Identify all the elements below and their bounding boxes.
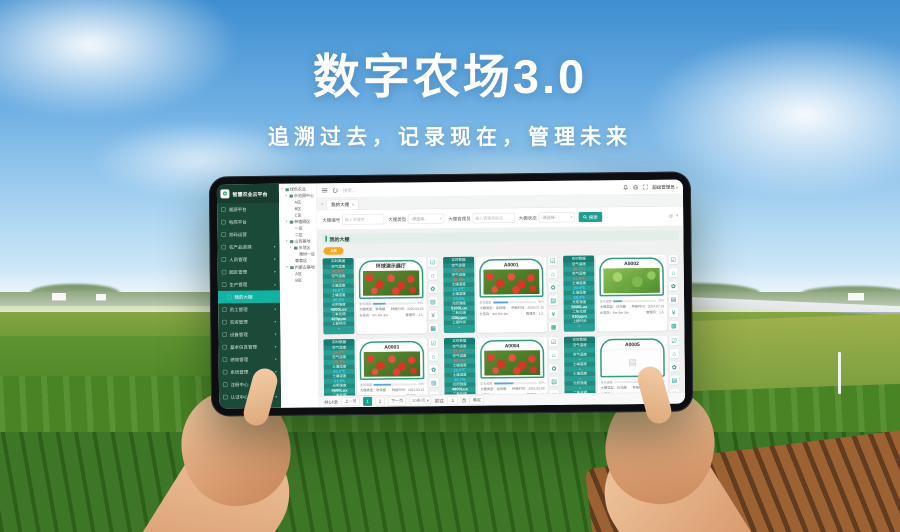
tab-my-greenhouse[interactable]: 我的大棚 ×: [327, 199, 359, 209]
chevron-icon: ▾: [275, 345, 277, 349]
folder-icon: [294, 246, 298, 249]
filter-refresh-icon[interactable]: ⟳: [669, 213, 674, 220]
farm-work-icon[interactable]: ✿: [670, 363, 679, 372]
pagination-total: 共14条: [324, 398, 338, 405]
select-checkbox-icon[interactable]: ☑: [428, 258, 437, 267]
hero-subtitle: 追溯过去，记录现在，管理未来: [0, 121, 900, 151]
greenhouse-card-body: A0001生长进度35%大棚类型：连栋棚种植时间：2020.07.23长宽高：8…: [476, 256, 547, 333]
greenhouse-arch: A0003: [359, 341, 424, 380]
chevron-down-icon: ▾: [440, 217, 442, 221]
info-line: 大棚类型：日光棚种植时间：2024.07.16: [600, 304, 664, 309]
info-pair: 长宽高：6m·4m·3m: [600, 311, 629, 316]
filter-select-3[interactable]: -请选择-▾: [539, 212, 575, 222]
sensor-value: -: [564, 323, 595, 328]
goto-confirm-button[interactable]: 确定: [470, 396, 484, 405]
info-line: 长宽高：8m·6m·3m管理员：1人: [480, 312, 544, 317]
chevron-icon: ▾: [275, 395, 277, 399]
sidebar-item-4[interactable]: 人员管理▾: [218, 253, 280, 266]
progress-label: 生长进度: [360, 382, 372, 387]
growth-progress: 生长进度45%: [480, 381, 544, 386]
info-pair: 种植时间：2021.03.12: [392, 388, 425, 393]
folder-icon: [285, 188, 289, 191]
progress-label: 生长进度: [479, 300, 491, 305]
info-pair: 管理员：1人: [646, 310, 664, 315]
revenue-icon[interactable]: ¥: [549, 309, 558, 318]
sidebar-item-label: 溯源平台: [229, 206, 273, 213]
menu-icon: [223, 382, 228, 387]
greenhouse-monitor-icon[interactable]: ⌂: [549, 351, 558, 360]
farm-work-icon[interactable]: ✿: [669, 282, 678, 291]
folder-icon: [290, 266, 294, 269]
section-accent-bar: [325, 236, 327, 242]
farm-work-icon[interactable]: ✿: [549, 283, 558, 292]
card-actions: ☑⌂✿▤¥▦: [548, 256, 559, 332]
greenhouse-card-1: 实时数据空气温度28.2℃空气湿度56.4%土壤温度21.3℃土壤湿度33.5%…: [443, 256, 559, 333]
greenhouse-monitor-icon[interactable]: ⌂: [548, 270, 557, 279]
growth-progress: 生长进度40%: [360, 382, 424, 387]
chevron-icon: ▾: [274, 257, 276, 261]
per-page-select[interactable]: 10条/页 ▾: [410, 396, 432, 405]
greenhouse-card-0: 实时数据空气温度26.5℃空气湿度63.2%土壤温度18.6℃土壤湿度30.2%…: [323, 257, 439, 334]
info-pair: 大棚类型：连栋棚: [479, 306, 505, 311]
page-button-1[interactable]: 1: [363, 397, 372, 406]
chevron-icon: ▾: [275, 332, 277, 336]
sidebar-item-5[interactable]: 园区管理▾: [218, 265, 280, 278]
page-button-2[interactable]: 2: [376, 397, 385, 406]
select-checkbox-icon[interactable]: ☑: [429, 339, 438, 348]
progress-bar: [613, 300, 656, 302]
progress-value: 35%: [538, 300, 544, 303]
ar-button[interactable]: AR: [324, 247, 344, 255]
menu-icon: [222, 257, 227, 262]
user-menu[interactable]: 超级管理员 ▾: [652, 183, 678, 190]
greenhouse-name: A0005: [604, 341, 660, 348]
tree-node-14[interactable]: B区: [281, 277, 317, 284]
progress-bar: [373, 302, 416, 304]
search-button[interactable]: 搜索: [579, 212, 603, 222]
archive-icon[interactable]: ▤: [429, 378, 438, 387]
app-logo-text: 智慧农业云平台: [232, 190, 267, 198]
refresh-icon[interactable]: [332, 187, 338, 193]
growth-progress: 生长进度20%: [600, 298, 664, 303]
filter-select-1[interactable]: -请选择-▾: [408, 214, 444, 224]
global-search-placeholder[interactable]: 搜索...: [343, 187, 356, 194]
sidebar-item-11[interactable]: 基本信息管理▾: [218, 340, 280, 353]
filter-input-2[interactable]: [473, 213, 515, 223]
filter-collapse-icon[interactable]: ▾: [676, 213, 678, 220]
filter-group-2: 大棚管理员: [448, 213, 515, 224]
greenhouse-arch: 环球演示展厅: [359, 260, 424, 299]
next-page-button[interactable]: 下一页: [388, 396, 406, 405]
greenhouse-arch: A0001: [479, 259, 544, 298]
chevron-icon: ▴: [274, 282, 276, 286]
archive-icon[interactable]: ▤: [550, 377, 559, 386]
progress-label: 生长进度: [601, 380, 613, 385]
bell-icon[interactable]: [623, 184, 629, 190]
greenhouse-name: A0001: [483, 262, 539, 269]
farm-work-icon[interactable]: ✿: [549, 364, 558, 373]
chevron-down-icon: ▾: [570, 215, 572, 219]
crop-photo: [363, 270, 420, 296]
crop-photo: [364, 351, 421, 377]
greenhouse-name: A0004: [484, 343, 540, 350]
folder-icon: [290, 220, 294, 223]
greenhouse-monitor-icon[interactable]: ⌂: [428, 271, 437, 280]
goto-unit: 页: [462, 397, 467, 404]
trace-qrcode-icon[interactable]: ▦: [549, 322, 558, 331]
greenhouse-name: A0002: [603, 260, 659, 267]
tree-expand-icon: ▾: [285, 193, 288, 200]
folder-icon: [290, 240, 294, 243]
chevron-icon: ▾: [274, 245, 276, 249]
sidebar-item-label: 设备管理: [230, 331, 272, 338]
info-pair: 大棚类型：日光棚: [601, 386, 627, 391]
farm-work-icon[interactable]: ✿: [428, 284, 437, 293]
fullscreen-icon[interactable]: [643, 184, 648, 189]
greenhouse-monitor-icon[interactable]: ⌂: [429, 352, 438, 361]
sensor-value: -: [323, 326, 354, 331]
archive-icon[interactable]: ▤: [549, 296, 558, 305]
sidebar-item-label: 电商平台: [229, 218, 273, 225]
info-line: 大棚类型：连栋棚种植时间：2020.07.23: [479, 306, 543, 311]
archive-icon[interactable]: ▤: [670, 376, 679, 385]
sensor-value: -: [565, 404, 596, 407]
info-pair: 管理员：1人: [405, 313, 423, 318]
greenhouse-card-2: 实时数据空气温度25.1℃空气湿度61.8%土壤温度19.4℃土壤湿度28.9%…: [563, 255, 679, 332]
org-tree: ▾绿色农业▾示范园中心A区B区C区▾种植园区一区二区▾山西基地▾示范区果树一区葡…: [279, 183, 319, 407]
tree-expand-icon: ▾: [286, 219, 289, 226]
prev-page-button[interactable]: 上一页: [342, 397, 360, 406]
menu-icon: [223, 370, 228, 375]
filter-label: 大棚管理员: [448, 215, 471, 222]
greenhouse-arch: A0004: [480, 340, 545, 379]
progress-value: 20%: [658, 299, 664, 302]
tablet-device: ✿ 智慧农业云平台 溯源平台电商平台双码运营农产品追溯▾人员管理▾园区管理▾生产…: [209, 171, 693, 416]
trace-qrcode-icon[interactable]: ▦: [669, 321, 678, 330]
greenhouse-name: 环球演示展厅: [363, 263, 419, 270]
sidebar-item-label: 农资管理: [230, 318, 272, 325]
section-title: 我的大棚: [329, 235, 349, 243]
select-checkbox-icon[interactable]: ☑: [669, 255, 678, 264]
chevron-icon: ▾: [274, 307, 276, 311]
progress-value: 45%: [539, 381, 545, 384]
menu-icon: [221, 232, 226, 237]
greenhouse-monitor-icon[interactable]: ⌂: [670, 349, 679, 358]
tab-collapse-icon[interactable]: «: [321, 198, 324, 210]
sidebar-item-1[interactable]: 电商平台: [217, 215, 279, 228]
menu-icon: [222, 320, 227, 325]
hero-scene: 数字农场3.0 追溯过去，记录现在，管理未来 ✿ 智慧农业云平台 溯源平台电商平…: [0, 0, 900, 532]
section-header: 我的大棚: [322, 230, 678, 244]
filter-label: 大棚编号: [322, 216, 340, 223]
menu-icon: [222, 307, 227, 312]
tree-expand-icon: ▾: [286, 238, 289, 245]
archive-icon[interactable]: ▤: [428, 297, 437, 306]
filter-group-3: 大棚状态-请选择-▾: [519, 212, 575, 223]
trace-qrcode-icon[interactable]: ▦: [429, 324, 438, 333]
filter-group-1: 大棚类型-请选择-▾: [388, 214, 444, 225]
growth-progress: 生长进度35%: [479, 300, 543, 305]
info-pair: 大棚类型：玻璃棚: [360, 388, 386, 393]
menu-icon: [223, 357, 228, 362]
menu-icon: [223, 345, 228, 350]
sidebar-item-3[interactable]: 农产品追溯▾: [217, 240, 279, 253]
sidebar-item-label: 绩效管理: [230, 356, 272, 363]
chevron-icon: ▾: [275, 320, 277, 324]
revenue-icon[interactable]: ¥: [669, 308, 678, 317]
card-actions: ☑⌂✿▤¥▦: [428, 257, 439, 333]
greenhouse-monitor-icon[interactable]: ⌂: [669, 268, 678, 277]
progress-value: 40%: [418, 383, 424, 386]
sidebar-item-6[interactable]: 生产管理▴: [218, 278, 280, 291]
sidebar-item-7[interactable]: 我的大棚: [218, 290, 280, 303]
pagination: 共14条上一页12下一页10条/页 ▾前往1页确定: [319, 392, 685, 407]
sidebar-item-2[interactable]: 双码运营: [217, 228, 279, 241]
progress-bar: [494, 382, 537, 384]
filter-fields: 大棚编号大棚类型-请选择-▾大棚管理员大棚状态-请选择-▾: [322, 212, 575, 225]
greenhouse-info: 大棚类型：玻璃棚种植时间：2020.04.23长宽高：8m·6m·3m管理员：1…: [359, 307, 423, 318]
sidebar-item-label: 园区管理: [229, 268, 271, 275]
tab-close-icon[interactable]: ×: [352, 200, 355, 210]
tree-node-label: B区: [295, 277, 302, 284]
card-actions: ☑⌂✿▤¥▦: [669, 255, 680, 331]
info-line: 长宽高：6m·4m·3m管理员：1人: [600, 310, 664, 315]
sidebar-item-label: 农产品追溯: [229, 243, 271, 250]
sidebar-item-label: 生产管理: [229, 281, 271, 288]
greenhouse-arch: A0002: [599, 257, 664, 296]
filter-select-value: -请选择-: [411, 216, 426, 222]
app-logo-icon: ✿: [220, 189, 229, 198]
select-checkbox-icon[interactable]: ☑: [548, 256, 557, 265]
app-logo-row: ✿ 智慧农业云平台: [217, 184, 279, 204]
info-pair: 种植时间：2020.07.23: [511, 306, 544, 311]
greenhouse-info: 大棚类型：连栋棚种植时间：2020.07.23长宽高：8m·6m·3m管理员：1…: [479, 306, 543, 317]
sensor-panel: 实时数据空气温度28.2℃空气湿度56.4%土壤温度21.3℃土壤湿度33.5%…: [443, 257, 475, 333]
sidebar-item-8[interactable]: 员工管理▾: [218, 303, 280, 316]
sensor-panel: 实时数据空气温度25.1℃空气湿度61.8%土壤温度19.4℃土壤湿度28.9%…: [563, 255, 595, 331]
sidebar-item-label: 人员管理: [229, 256, 271, 263]
sensor-value: -: [444, 325, 475, 330]
hero-title: 数字农场3.0: [0, 38, 900, 107]
progress-bar: [493, 301, 536, 303]
sidebar-item-label: 我的大棚: [234, 293, 273, 300]
info-line: 长宽高：8m·6m·3m管理员：1人: [359, 313, 423, 318]
sensor-panel: 实时数据空气温度26.5℃空气湿度63.2%土壤温度18.6℃土壤湿度30.2%…: [323, 258, 355, 334]
filter-label: 大棚状态: [519, 214, 537, 221]
crop-photo: [484, 350, 541, 376]
sidebar-item-label: 员工管理: [230, 306, 272, 313]
farm-work-icon[interactable]: ✿: [429, 365, 438, 374]
sync-icon[interactable]: [633, 184, 639, 190]
info-pair: 大棚类型：连栋棚: [480, 387, 506, 392]
sidebar-item-label: 双码运营: [229, 231, 273, 238]
greenhouse-info: 大棚类型：日光棚种植时间：2024.07.16长宽高：6m·4m·3m管理员：1…: [600, 304, 664, 315]
info-line: 大棚类型：玻璃棚种植时间：2020.04.23: [359, 307, 423, 312]
main-area: 搜索...: [317, 180, 685, 408]
tree-expand-icon: ▾: [290, 245, 293, 252]
menu-icon: [222, 282, 227, 287]
goto-label: 前往: [435, 397, 444, 404]
progress-bar: [373, 383, 416, 385]
tablet-screen: ✿ 智慧农业云平台 溯源平台电商平台双码运营农产品追溯▾人员管理▾园区管理▾生产…: [217, 180, 685, 409]
filter-input-0[interactable]: [342, 214, 384, 224]
progress-value: 30%: [417, 302, 423, 305]
info-pair: 种植时间：2020.04.23: [391, 307, 424, 312]
archive-icon[interactable]: ▤: [669, 295, 678, 304]
info-pair: 大棚类型：日光棚: [600, 305, 626, 310]
info-line: 大棚类型：连栋棚种植时间：2021.05.08: [480, 387, 544, 392]
utility-pole: [838, 352, 841, 394]
progress-label: 生长进度: [359, 301, 371, 306]
growth-progress: 生长进度30%: [359, 301, 423, 306]
menu-icon: [221, 220, 226, 225]
goto-page-input[interactable]: 1: [447, 396, 458, 405]
info-pair: 大棚类型：玻璃棚: [359, 307, 385, 312]
select-checkbox-icon[interactable]: ☑: [669, 336, 678, 345]
hero-text: 数字农场3.0 追溯过去，记录现在，管理未来: [0, 38, 900, 151]
info-line: 大棚类型：玻璃棚种植时间：2021.03.12: [360, 388, 424, 393]
progress-label: 生长进度: [480, 381, 492, 386]
info-pair: 种植时间：2024.07.16: [632, 304, 665, 309]
menu-icon: [222, 270, 227, 275]
filter-group-0: 大棚编号: [322, 214, 384, 225]
select-checkbox-icon[interactable]: ☑: [549, 337, 558, 346]
crop-photo: [483, 269, 540, 295]
info-pair: 管理员：1人: [526, 312, 544, 317]
greenhouse-card-body: 环球演示展厅生长进度30%大棚类型：玻璃棚种植时间：2020.04.23长宽高：…: [356, 257, 427, 334]
tree-expand-icon: ▾: [281, 186, 284, 193]
revenue-icon[interactable]: ¥: [428, 310, 437, 319]
folder-icon: [289, 194, 293, 197]
sidebar-item-label: 基本信息管理: [230, 343, 272, 350]
sidebar-item-12[interactable]: 绩效管理▾: [219, 353, 281, 366]
greenhouse-name: A0003: [364, 344, 420, 351]
greenhouse-card-body: A0002生长进度20%大棚类型：日光棚种植时间：2024.07.16长宽高：6…: [596, 255, 667, 332]
progress-label: 生长进度: [600, 299, 612, 304]
menu-icon: [221, 207, 226, 212]
info-pair: 长宽高：8m·6m·3m: [359, 313, 388, 318]
menu-icon: [221, 245, 226, 250]
sidebar-item-0[interactable]: 溯源平台: [217, 203, 279, 216]
info-pair: 种植时间：2021.05.08: [512, 387, 545, 392]
sidebar-item-9[interactable]: 农资管理▾: [218, 315, 280, 328]
menu-icon: [227, 295, 232, 300]
content-area: 我的大棚 AR 实时数据空气温度26.5℃空气湿度63.2%土壤温度18.6℃土…: [317, 226, 685, 407]
chevron-icon: ▾: [274, 270, 276, 274]
info-pair: 长宽高：8m·6m·3m: [480, 312, 509, 317]
tree-expand-icon: ▾: [286, 264, 289, 271]
hamburger-icon[interactable]: [322, 188, 328, 192]
menu-icon: [222, 332, 227, 337]
cards-grid: 实时数据空气温度26.5℃空气湿度63.2%土壤温度18.6℃土壤湿度30.2%…: [323, 255, 681, 408]
farm-app: ✿ 智慧农业云平台 溯源平台电商平台双码运营农产品追溯▾人员管理▾园区管理▾生产…: [217, 180, 685, 409]
chevron-icon: ▾: [275, 357, 277, 361]
menu-icon: [223, 395, 228, 400]
sidebar-item-10[interactable]: 设备管理▾: [218, 328, 280, 341]
filter-select-value: -请选择-: [541, 215, 556, 221]
filter-label: 大棚类型: [388, 216, 406, 223]
crop-photo: [603, 268, 660, 294]
